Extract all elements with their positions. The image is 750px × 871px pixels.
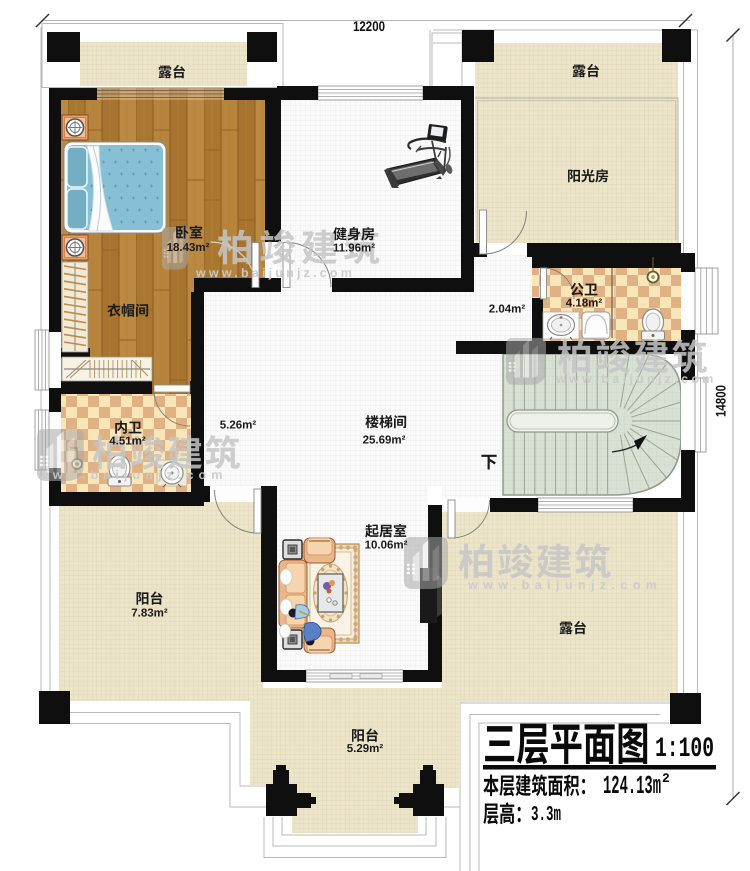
- svg-text:3.3m: 3.3m: [531, 804, 561, 827]
- svg-text:4.18m²: 4.18m²: [566, 298, 603, 310]
- svg-text:www.baijunjz.com: www.baijunjz.com: [467, 578, 662, 592]
- svg-text:11.96m²: 11.96m²: [333, 243, 375, 255]
- svg-text:1:100: 1:100: [655, 734, 714, 765]
- svg-text:124.13m: 124.13m: [603, 771, 661, 801]
- svg-text:18.43m²: 18.43m²: [167, 242, 210, 254]
- svg-text:12200: 12200: [353, 18, 385, 34]
- svg-text:25.69m²: 25.69m²: [363, 435, 406, 447]
- svg-text:10.06m²: 10.06m²: [365, 540, 408, 552]
- svg-text:5.26m²: 5.26m²: [220, 420, 257, 432]
- svg-text:www.baijunjz.com: www.baijunjz.com: [195, 266, 355, 280]
- svg-text:www.baijunjz.com: www.baijunjz.com: [555, 372, 717, 386]
- svg-text:5.29m²: 5.29m²: [347, 743, 384, 755]
- svg-text:7.83m²: 7.83m²: [131, 608, 168, 620]
- svg-text:4.51m²: 4.51m²: [109, 436, 146, 448]
- svg-text:2: 2: [662, 771, 670, 786]
- svg-text:www.baijunjz.com: www.baijunjz.com: [37, 468, 227, 482]
- svg-text:2.04m²: 2.04m²: [489, 304, 526, 316]
- svg-text:14800: 14800: [713, 385, 729, 417]
